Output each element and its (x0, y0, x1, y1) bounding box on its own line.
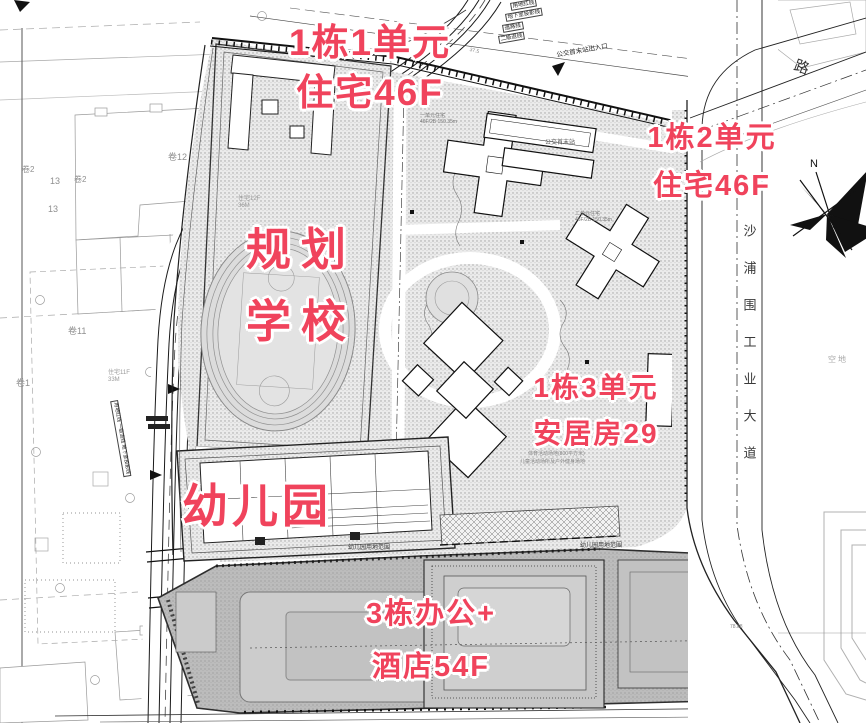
annotation-line: 幼儿园 (178, 480, 336, 532)
annotation-school: 规划 学校 (222, 214, 380, 358)
annotation-line: 1栋3单元 (512, 365, 680, 411)
road-label-lu: 路 (791, 58, 811, 79)
annotation-office-hotel: 3栋办公+ 酒店54F (342, 588, 520, 694)
block-13b-label: 13 (48, 204, 58, 214)
annotation-line: 3栋办公+ (342, 588, 520, 641)
block-13a-label: 13 (50, 176, 60, 186)
empty-lot-label: 空地 (828, 356, 848, 365)
annotation-line: 酒店54F (342, 641, 520, 694)
block-2b-label: 卷2 (74, 176, 86, 185)
site-plan-canvas: 沙浦围工业大道路空地N卷12卷213卷213卷11卷1住宅12F 36M住宅11… (0, 0, 866, 723)
annotation-line: 1栋1单元 (270, 18, 470, 68)
dim-375-label: 37.5 (469, 48, 480, 56)
bus-entrance-label: 公交首末站出入口 (556, 43, 608, 59)
road-name-shapuwei: 沙浦围工业大道 (741, 224, 756, 483)
annotation-building1-unit2: 1栋2单元 住宅46F (628, 114, 796, 210)
north-label: N (810, 158, 818, 170)
block-2a-label: 卷2 (22, 166, 34, 175)
resid-12f-label: 住宅12F 36M (238, 196, 268, 209)
annotation-line: 学校 (222, 286, 380, 358)
dim-7888-label: 78.88 (730, 625, 743, 631)
annotation-building1-unit3: 1栋3单元 安居房29 (512, 365, 680, 457)
line-label-tuixian: 二级退线 (498, 31, 525, 44)
resid-11f-label: 住宅11F 33M (108, 370, 138, 383)
annotation-line: 安居房29 (512, 411, 680, 457)
annotation-line: 住宅46F (270, 68, 470, 118)
kg-range-label-2: 幼儿园用地范围 (580, 543, 622, 550)
annotation-line: 住宅46F (628, 162, 796, 210)
annotation-building1-unit1: 1栋1单元 住宅46F (270, 18, 470, 118)
annotation-line: 规划 (222, 214, 380, 286)
block-12-label: 卷12 (168, 152, 187, 162)
left-line-stack-label: 用地红线 一级退线 地下室投影线 (111, 400, 132, 477)
annotation-kindergarten: 幼儿园 (178, 480, 336, 532)
bus-station-label: 公交首末站 (545, 140, 575, 147)
annotation-line: 1栋2单元 (628, 114, 796, 162)
block-11-label: 卷11 (68, 326, 86, 336)
tower2-spec-label: 二单元住宅 46F/2B 150.35m (575, 212, 617, 223)
block-1-label: 卷1 (16, 378, 30, 388)
kg-range-label-1: 幼儿园用地范围 (348, 545, 390, 552)
activity-note-2: 儿童活动场所及户外健身场地 (520, 460, 585, 466)
